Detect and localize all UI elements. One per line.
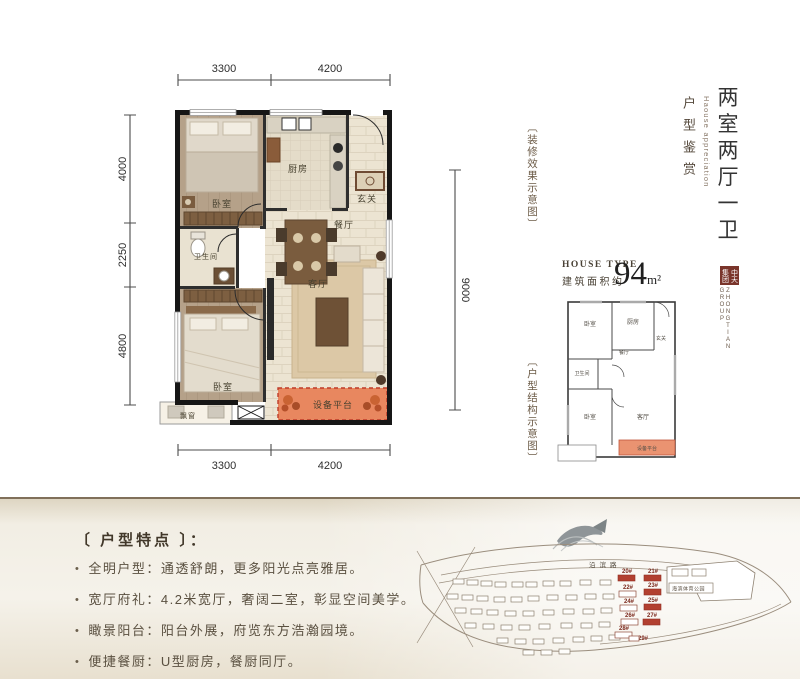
room-label-kitchen: 厨房: [288, 163, 308, 174]
bullet-icon: •: [75, 562, 80, 576]
room-label-entry: 玄关: [357, 193, 377, 204]
room-label-dining: 餐厅: [334, 219, 354, 230]
room-label-living: 客厅: [308, 278, 328, 289]
whale-logo-icon: [553, 519, 607, 551]
floor-lamp-2: [376, 375, 386, 385]
room-label-bedroom-a: 卧室: [212, 198, 232, 209]
site-map: 沿滨路 20# 21# 22# 23# 24#: [415, 507, 800, 672]
area-value: 94m²: [614, 256, 661, 293]
park-label: 海滨体育公园: [672, 586, 705, 593]
pillow: [222, 318, 248, 330]
caption-structure: 〔户型结构示意图〕: [524, 356, 539, 464]
features-block: 〔 户型特点 〕： • 全明户型：通透舒朗，更多阳光点亮雅居。 • 宽厅府礼：4…: [75, 529, 425, 679]
building-label: 20#: [622, 569, 633, 575]
kitchen-sink: [282, 118, 296, 130]
caption-deco-effect: 〔装修效果示意图〕: [524, 122, 539, 230]
entry-rug: [356, 172, 384, 190]
main-floorplan: 3300 4200 4000 2250 4800 9000 3300 4200: [120, 50, 480, 480]
dining-chair: [276, 262, 287, 276]
building-label: 29#: [638, 636, 649, 642]
features-title: 〔 户型特点 〕：: [75, 529, 425, 550]
mini-floorplan: 卧室 厨房 玄关 餐厅 卫生间 卧室 客厅 设备平台: [550, 295, 690, 470]
pillow: [223, 122, 251, 135]
toilet-tank: [191, 232, 205, 239]
dim-bottom-2: 4200: [318, 460, 342, 472]
fridge: [267, 138, 280, 162]
wardrobe-a: [184, 212, 262, 225]
feature-text: 瞰景阳台：阳台外展，府览东方浩瀚园境。: [88, 624, 364, 638]
bullet-icon: •: [75, 655, 80, 669]
dim-top-2: 4200: [318, 63, 342, 75]
coffee-table: [316, 298, 348, 346]
brand-seal: 中天 集团: [720, 266, 739, 285]
page-subtitle: 户型鉴赏: [679, 96, 698, 184]
pillow: [190, 122, 218, 135]
feature-text: 全明户型：通透舒朗，更多阳光点亮雅居。: [88, 562, 364, 576]
floor-lamp: [376, 251, 386, 261]
room-label-bath: 卫生间: [194, 252, 218, 261]
building-label: 28#: [619, 626, 630, 632]
brand-name-en: ZHONGTIAN GROUP: [719, 288, 731, 351]
building-label: 22#: [623, 585, 634, 591]
dim-left-3: 4800: [117, 334, 129, 358]
brochure-page: 3300 4200 4000 2250 4800 9000 3300 4200: [0, 0, 800, 679]
dim-left-1: 4000: [117, 157, 129, 181]
mini-label-bedroom-b: 卧室: [584, 413, 596, 421]
armchair: [334, 246, 360, 262]
brand-line-1: ZHONGTIAN: [725, 288, 731, 351]
numbered-buildings: 20# 21# 22# 23# 24# 25# 26# 27# 28# 29#: [615, 569, 661, 642]
housetype-block: HOUSE TYPE 建筑面积约 94m²: [562, 260, 712, 288]
dining-chair: [326, 262, 337, 276]
dining-chair: [326, 228, 337, 242]
building-blocks: [447, 579, 620, 655]
park-area: 海滨体育公园: [667, 561, 755, 601]
building-label: 23#: [648, 583, 659, 589]
feature-item: • 瞰景阳台：阳台外展，府览东方浩瀚园境。: [75, 624, 425, 638]
feature-text: 宽厅府礼：4.2米宽厅，奢阔二室，彰显空间美学。: [88, 593, 415, 607]
mini-label-kitchen: 厨房: [627, 318, 639, 326]
building-label: 21#: [648, 569, 659, 575]
road-label: 沿滨路: [589, 560, 621, 569]
bullet-icon: •: [75, 624, 80, 638]
mini-label-bath: 卫生间: [574, 370, 589, 377]
mini-label-bedroom-a: 卧室: [584, 320, 596, 328]
area-number: 94: [614, 256, 647, 292]
dining-table: [285, 220, 327, 284]
bed-a-blanket: [186, 152, 258, 192]
area-unit: m²: [647, 272, 661, 287]
tv-cabinet: [267, 278, 274, 360]
page-title-en: Haouse appreciation: [702, 96, 711, 188]
building-label: 26#: [625, 613, 636, 619]
feature-item: • 便捷餐厨：U型厨房，餐厨同厅。: [75, 655, 425, 669]
mini-bay: [558, 445, 596, 461]
mini-label-entry: 玄关: [656, 335, 666, 342]
kitchen-sink-2: [299, 118, 311, 130]
mini-label-dining: 餐厅: [619, 349, 629, 356]
room-label-bay: 飘窗: [180, 411, 196, 420]
room-label-bedroom-b: 卧室: [213, 381, 233, 392]
feature-item: • 全明户型：通透舒朗，更多阳光点亮雅居。: [75, 562, 425, 576]
wardrobe-b: [184, 290, 262, 302]
bottom-panel: 〔 户型特点 〕： • 全明户型：通透舒朗，更多阳光点亮雅居。 • 宽厅府礼：4…: [0, 499, 800, 679]
seal-text-left: 集团: [721, 269, 730, 283]
building-label: 25#: [648, 598, 659, 604]
dim-left-2: 2250: [117, 243, 129, 267]
pillow: [190, 318, 216, 330]
feature-text: 便捷餐厨：U型厨房，餐厨同厅。: [88, 655, 302, 669]
feature-item: • 宽厅府礼：4.2米宽厅，奢阔二室，彰显空间美学。: [75, 593, 425, 607]
building-label: 24#: [624, 599, 635, 605]
bullet-icon: •: [75, 593, 80, 607]
dim-right: 9000: [459, 278, 471, 302]
room-label-platform: 设备平台: [313, 399, 353, 410]
page-title: 两室两厅一卫: [712, 86, 742, 245]
mini-label-platform: 设备平台: [637, 445, 657, 452]
basin: [219, 271, 229, 281]
dim-bottom-1: 3300: [212, 460, 236, 472]
mini-label-living: 客厅: [637, 413, 649, 421]
dim-top-1: 3300: [212, 63, 236, 75]
building-label: 27#: [647, 613, 658, 619]
seal-text-right: 中天: [730, 269, 739, 283]
dining-chair: [276, 228, 287, 242]
